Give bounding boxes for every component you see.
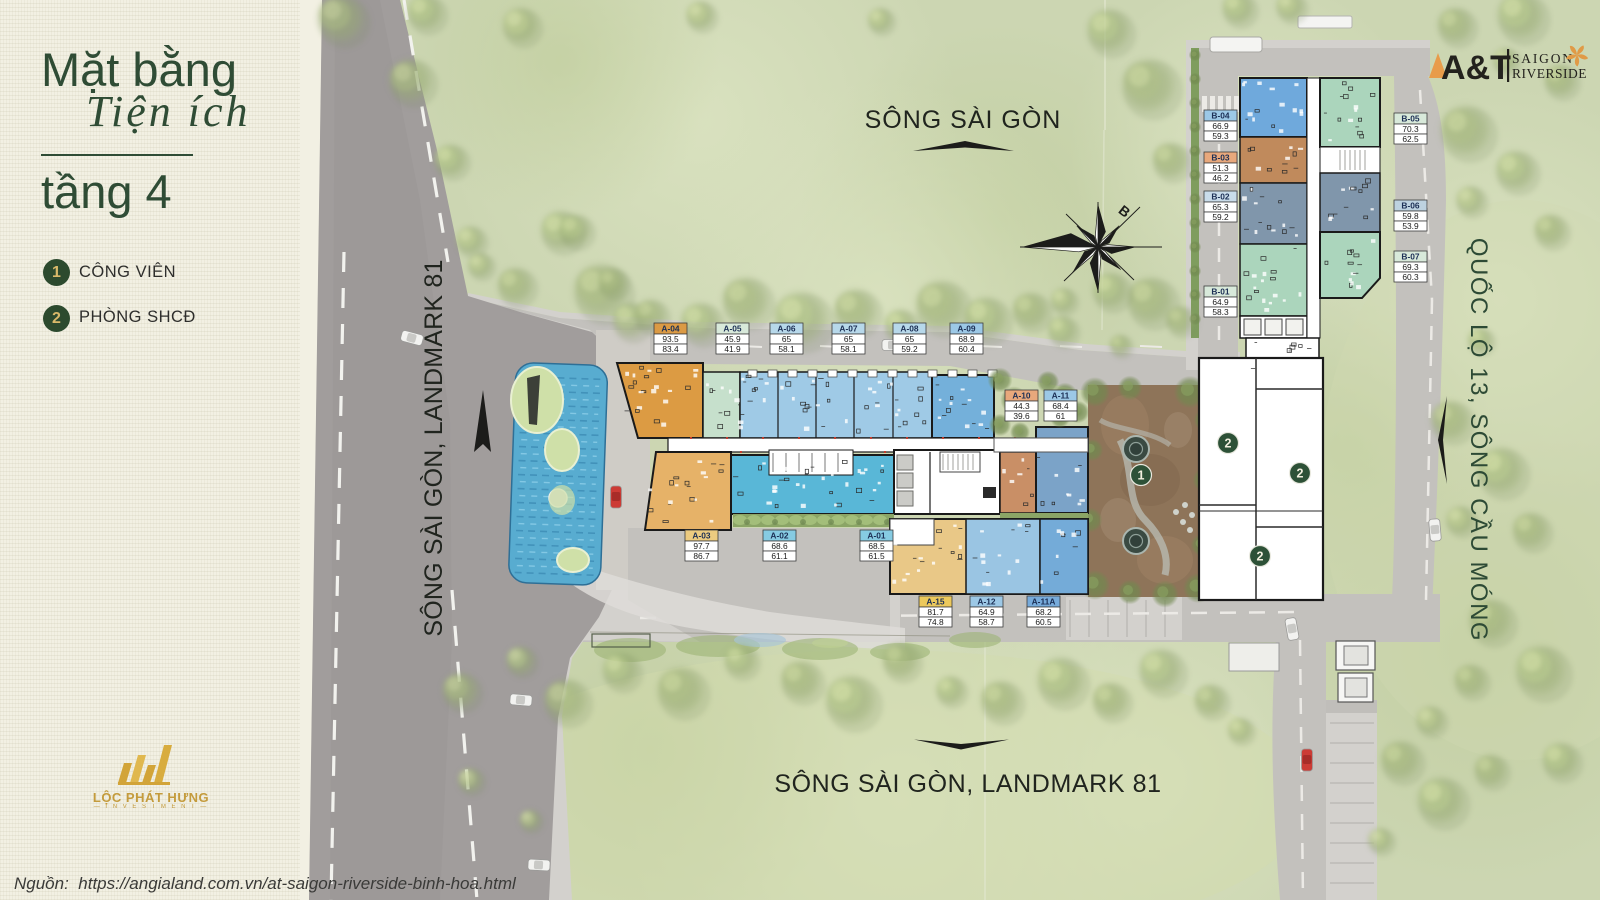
- svg-text:68.9: 68.9: [958, 334, 975, 344]
- svg-text:61.5: 61.5: [868, 551, 885, 561]
- svg-text:QUỐC LỘ 13, SÔNG CẦU MÓNG: QUỐC LỘ 13, SÔNG CẦU MÓNG: [1465, 238, 1493, 642]
- svg-text:A-15: A-15: [926, 597, 944, 607]
- svg-text:46.2: 46.2: [1212, 173, 1229, 183]
- svg-text:93.5: 93.5: [662, 334, 679, 344]
- svg-text:58.3: 58.3: [1212, 307, 1229, 317]
- svg-text:68.2: 68.2: [1035, 607, 1052, 617]
- svg-text:60.4: 60.4: [958, 344, 975, 354]
- svg-text:B-07: B-07: [1401, 252, 1419, 262]
- svg-text:A-11A: A-11A: [1032, 597, 1056, 607]
- svg-text:B-03: B-03: [1211, 153, 1229, 163]
- svg-text:A-07: A-07: [839, 324, 857, 334]
- svg-text:B-01: B-01: [1211, 287, 1229, 297]
- svg-text:64.9: 64.9: [978, 607, 995, 617]
- svg-text:SÔNG SÀI GÒN, LANDMARK 81: SÔNG SÀI GÒN, LANDMARK 81: [774, 769, 1161, 798]
- svg-text:60.5: 60.5: [1035, 617, 1052, 627]
- svg-text:2: 2: [1257, 549, 1264, 563]
- svg-text:65: 65: [905, 334, 915, 344]
- svg-text:68.4: 68.4: [1052, 401, 1069, 411]
- svg-text:97.7: 97.7: [693, 541, 710, 551]
- svg-text:58.7: 58.7: [978, 617, 995, 627]
- svg-text:A-03: A-03: [692, 531, 710, 541]
- svg-text:1: 1: [1138, 468, 1145, 482]
- svg-text:59.2: 59.2: [901, 344, 918, 354]
- svg-text:A-06: A-06: [777, 324, 795, 334]
- svg-text:60.3: 60.3: [1402, 272, 1419, 282]
- svg-text:B-02: B-02: [1211, 192, 1229, 202]
- svg-text:65: 65: [782, 334, 792, 344]
- svg-text:A-09: A-09: [957, 324, 975, 334]
- svg-text:62.5: 62.5: [1402, 134, 1419, 144]
- svg-text:81.7: 81.7: [927, 607, 944, 617]
- svg-text:59.8: 59.8: [1402, 211, 1419, 221]
- svg-text:A-04: A-04: [661, 324, 679, 334]
- svg-text:A-02: A-02: [770, 531, 788, 541]
- svg-text:51.3: 51.3: [1212, 163, 1229, 173]
- svg-text:41.9: 41.9: [724, 344, 741, 354]
- svg-text:SÔNG SÀI GÒN, LANDMARK 81: SÔNG SÀI GÒN, LANDMARK 81: [419, 259, 448, 636]
- svg-text:A-10: A-10: [1012, 391, 1030, 401]
- svg-text:59.2: 59.2: [1212, 212, 1229, 222]
- svg-text:B-05: B-05: [1401, 114, 1419, 124]
- svg-text:58.1: 58.1: [778, 344, 795, 354]
- svg-text:64.9: 64.9: [1212, 297, 1229, 307]
- svg-text:SÔNG SÀI GÒN: SÔNG SÀI GÒN: [865, 105, 1062, 134]
- svg-text:2: 2: [1225, 436, 1232, 450]
- svg-text:39.6: 39.6: [1013, 411, 1030, 421]
- svg-text:59.3: 59.3: [1212, 131, 1229, 141]
- svg-text:69.3: 69.3: [1402, 262, 1419, 272]
- svg-text:B-04: B-04: [1211, 111, 1229, 121]
- svg-text:68.5: 68.5: [868, 541, 885, 551]
- svg-text:68.6: 68.6: [771, 541, 788, 551]
- svg-text:SAIGON: SAIGON: [1512, 51, 1574, 66]
- svg-text:65: 65: [844, 334, 854, 344]
- svg-text:83.4: 83.4: [662, 344, 679, 354]
- svg-text:RIVERSIDE: RIVERSIDE: [1512, 66, 1587, 81]
- svg-text:A&T: A&T: [1441, 49, 1511, 87]
- svg-text:61: 61: [1056, 411, 1066, 421]
- svg-text:A-12: A-12: [977, 597, 995, 607]
- svg-text:70.3: 70.3: [1402, 124, 1419, 134]
- svg-text:A-08: A-08: [900, 324, 918, 334]
- svg-text:A-01: A-01: [867, 531, 885, 541]
- svg-text:45.9: 45.9: [724, 334, 741, 344]
- svg-text:A-05: A-05: [723, 324, 741, 334]
- svg-text:86.7: 86.7: [693, 551, 710, 561]
- svg-text:58.1: 58.1: [840, 344, 857, 354]
- svg-text:66.9: 66.9: [1212, 121, 1229, 131]
- svg-text:65.3: 65.3: [1212, 202, 1229, 212]
- svg-text:A-11: A-11: [1052, 391, 1070, 401]
- svg-text:B-06: B-06: [1401, 201, 1419, 211]
- svg-text:2: 2: [1297, 466, 1304, 480]
- svg-text:44.3: 44.3: [1013, 401, 1030, 411]
- svg-text:61.1: 61.1: [771, 551, 788, 561]
- svg-text:53.9: 53.9: [1402, 221, 1419, 231]
- svg-text:74.8: 74.8: [927, 617, 944, 627]
